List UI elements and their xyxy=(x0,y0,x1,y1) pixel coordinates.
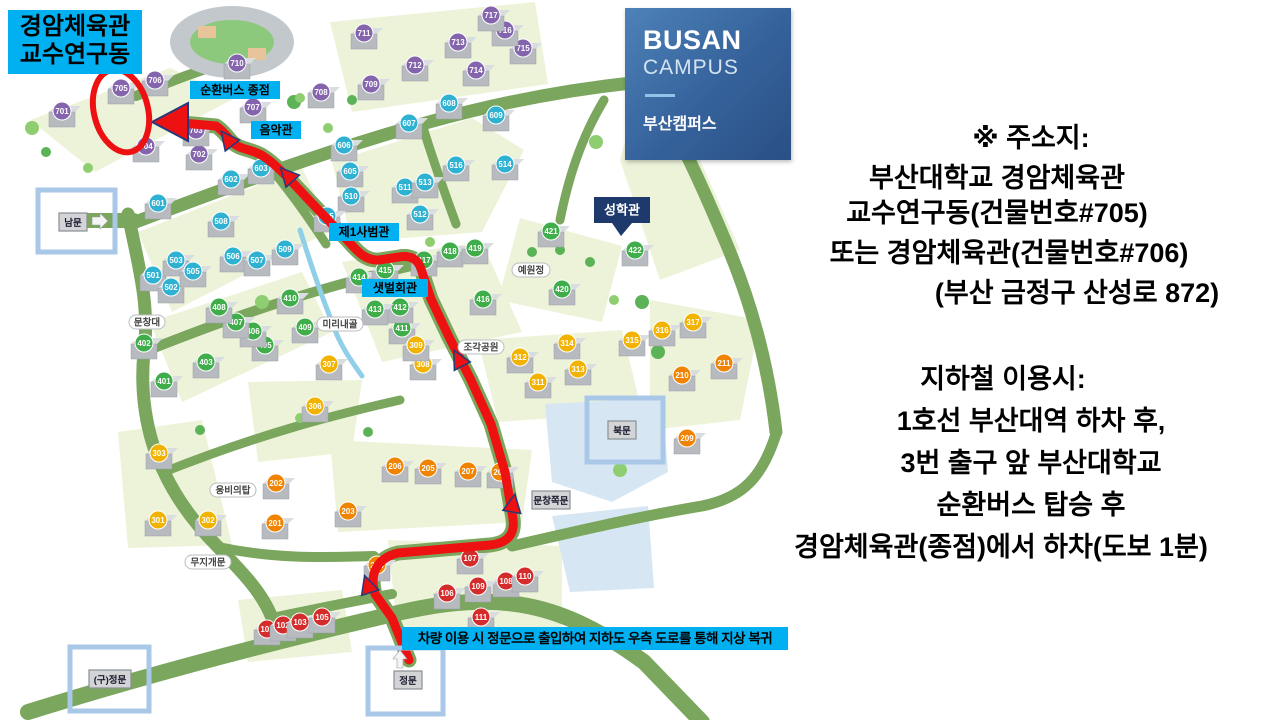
destination-banner-line1: 경암체육관 xyxy=(20,13,130,40)
route-label-text: 제1사범관 xyxy=(339,224,390,239)
building-number: 509 xyxy=(278,245,292,254)
gate-sign-label: 북문 xyxy=(613,426,631,437)
building-number: 511 xyxy=(399,183,412,192)
building-number: 506 xyxy=(226,252,240,261)
place-label-text: 문창대 xyxy=(134,317,160,329)
route-label-text: 순환버스 종점 xyxy=(200,82,270,97)
building-number: 301 xyxy=(151,516,165,525)
subway-line: 1호선 부산대역 하차 후, xyxy=(782,400,1280,442)
building-number: 205 xyxy=(421,464,435,473)
building-number: 710 xyxy=(230,59,244,68)
building-number: 701 xyxy=(55,107,69,116)
road xyxy=(28,602,702,720)
road xyxy=(218,547,374,557)
building-number: 607 xyxy=(402,119,416,128)
building-708: 708 xyxy=(308,83,340,108)
gate-sign-label: 정문 xyxy=(399,675,417,687)
building-number: 210 xyxy=(675,371,689,380)
route-label-eumakgwan: 음악관 xyxy=(251,121,301,139)
building-number: 602 xyxy=(224,175,238,184)
subway-line: 지하철 이용시: xyxy=(754,358,1252,400)
building-702: 702 xyxy=(186,145,218,170)
building-number: 201 xyxy=(268,519,282,528)
building-number: 609 xyxy=(489,111,503,120)
building-number: 306 xyxy=(308,402,322,411)
building-number: 203 xyxy=(341,507,355,516)
building-number: 312 xyxy=(513,353,527,362)
building-number: 415 xyxy=(378,266,392,275)
subway-line: 3번 출구 앞 부산대학교 xyxy=(782,442,1280,484)
building-number: 513 xyxy=(418,178,432,187)
tree xyxy=(323,123,333,133)
place-label-ungbi-tower: 웅비의탑 xyxy=(210,483,256,497)
building-number: 503 xyxy=(169,256,183,265)
building-number: 512 xyxy=(413,210,427,219)
place-label-mirinaegol: 미리내골 xyxy=(317,317,363,331)
building-number: 605 xyxy=(343,167,357,176)
building-number: 707 xyxy=(246,103,260,112)
building-209: 209 xyxy=(674,429,706,454)
address-line: (부산 금정구 산성로 872) xyxy=(828,273,1280,313)
building-number: 107 xyxy=(463,554,477,563)
gate-sign-label: 문창쪽문 xyxy=(534,495,569,507)
car-access-note: 차량 이용 시 정문으로 출입하여 지하도 우측 도로를 통해 지상 복귀 xyxy=(402,627,788,650)
building-number: 313 xyxy=(571,365,585,374)
logo-subtitle: CAMPUS xyxy=(643,55,791,81)
place-label-text: 웅비의탑 xyxy=(216,485,251,497)
building-number: 412 xyxy=(393,303,407,312)
gate-jeongmun: 정문 xyxy=(368,648,443,714)
building-number: 714 xyxy=(469,66,483,75)
building-number: 207 xyxy=(461,467,475,476)
building-number: 711 xyxy=(358,29,371,38)
building-number: 302 xyxy=(201,516,215,525)
building-number: 422 xyxy=(628,246,642,255)
tree xyxy=(585,257,595,267)
building-number: 507 xyxy=(250,256,264,265)
tree xyxy=(195,425,205,435)
place-label-text: 미리내골 xyxy=(323,319,358,331)
building-number: 510 xyxy=(344,192,358,201)
building-number: 409 xyxy=(298,323,312,332)
building-number: 402 xyxy=(137,339,151,348)
tree xyxy=(41,147,51,157)
callout-pointer xyxy=(612,223,632,236)
route-label-jeil-sabeomgwan: 제1사범관 xyxy=(329,223,399,241)
tree xyxy=(83,163,93,173)
tree xyxy=(589,135,603,149)
route-label-text: 샛벌회관 xyxy=(373,280,417,295)
tree xyxy=(613,463,627,477)
subway-line: 경암체육관(종점)에서 하차(도보 1분) xyxy=(752,526,1250,568)
logo-korean: 부산캠퍼스 xyxy=(643,110,791,134)
building-number: 608 xyxy=(442,99,456,108)
destination-banner: 경암체육관 교수연구동 xyxy=(8,10,142,74)
building-number: 419 xyxy=(468,244,482,253)
building-number: 502 xyxy=(164,283,178,292)
building-number: 413 xyxy=(368,305,382,314)
route-label-text: 음악관 xyxy=(259,122,292,137)
building-number: 606 xyxy=(337,141,351,150)
building-number: 420 xyxy=(555,285,569,294)
address-line: ※ 주소지: xyxy=(782,118,1280,158)
building-number: 712 xyxy=(408,61,422,70)
building-number: 421 xyxy=(544,227,558,236)
building-707: 707 xyxy=(240,98,272,123)
address-line: 또는 경암체육관(건물번호#706) xyxy=(760,233,1258,273)
building-number: 309 xyxy=(409,341,423,350)
building-number: 717 xyxy=(484,11,498,20)
building-number: 307 xyxy=(322,360,336,369)
tree xyxy=(363,427,373,437)
destination-banner-line2: 교수연구동 xyxy=(20,41,130,68)
building-number: 505 xyxy=(186,267,200,276)
building-number: 315 xyxy=(625,336,639,345)
building-number: 202 xyxy=(269,479,283,488)
building-number: 105 xyxy=(315,613,329,622)
building-number: 708 xyxy=(314,88,328,97)
building-307: 307 xyxy=(316,355,348,380)
building-number: 408 xyxy=(212,303,226,312)
building-number: 314 xyxy=(560,339,574,348)
building-number: 106 xyxy=(440,589,454,598)
stadium-stand xyxy=(198,26,216,38)
tree xyxy=(295,93,305,103)
logo-title: BUSAN xyxy=(643,25,791,55)
place-label-yewonjeong: 예원정 xyxy=(512,263,550,277)
place-label-text: 조각공원 xyxy=(464,342,499,354)
building-number: 501 xyxy=(146,271,160,280)
busan-campus-logo: BUSAN CAMPUS 부산캠퍼스 xyxy=(625,8,791,160)
building-number: 508 xyxy=(214,217,228,226)
gate-munchang-side-gate: 문창쪽문 xyxy=(532,491,570,509)
gate-sign-label: 남문 xyxy=(64,217,82,229)
building-number: 209 xyxy=(680,434,694,443)
building-number: 206 xyxy=(388,462,402,471)
pond xyxy=(545,398,668,502)
callout-seonghakgwan: 성학관 xyxy=(594,197,650,236)
building-number: 411 xyxy=(396,324,409,333)
building-number: 211 xyxy=(718,359,731,368)
place-label-mujigae-gate: 무지개문 xyxy=(185,555,231,569)
tree xyxy=(255,295,269,309)
building-number: 111 xyxy=(475,613,488,622)
building-number: 110 xyxy=(519,572,532,581)
building-number: 705 xyxy=(114,84,128,93)
building-number: 410 xyxy=(283,294,297,303)
building-number: 317 xyxy=(686,318,700,327)
building-number: 715 xyxy=(516,44,530,53)
gate-nammun: 남문 xyxy=(38,190,125,252)
building-201: 201 xyxy=(262,514,294,539)
building-number: 109 xyxy=(471,582,485,591)
subway-block: 지하철 이용시: 1호선 부산대역 하차 후, 3번 출구 앞 부산대학교 순환… xyxy=(782,358,1280,568)
building-202: 202 xyxy=(263,474,295,499)
building-number: 401 xyxy=(157,377,171,386)
building-number: 418 xyxy=(443,247,457,256)
route-label-sunhwan-bus-terminal: 순환버스 종점 xyxy=(190,81,280,99)
building-number: 311 xyxy=(532,378,545,387)
tree xyxy=(347,95,357,105)
building-315: 315 xyxy=(619,331,651,356)
place-label-text: 예원정 xyxy=(518,265,544,277)
directions-panel: ※ 주소지: 부산대학교 경암체육관 교수연구동(건물번호#705) 또는 경암… xyxy=(782,118,1280,568)
building-number: 108 xyxy=(499,577,513,586)
building-number: 713 xyxy=(451,38,465,47)
building-number: 103 xyxy=(293,618,307,627)
building-number: 603 xyxy=(254,164,268,173)
logo-divider xyxy=(645,94,675,97)
building-number: 416 xyxy=(476,295,490,304)
route-label-saetbeol-hoegwan: 샛벌회관 xyxy=(362,279,428,297)
building-number: 709 xyxy=(364,80,378,89)
place-label-jogak-park: 조각공원 xyxy=(458,340,504,354)
tree xyxy=(425,237,435,247)
tree xyxy=(651,345,665,359)
tree xyxy=(635,295,649,309)
building-number: 316 xyxy=(655,326,669,335)
building-number: 303 xyxy=(152,449,166,458)
address-block: ※ 주소지: 부산대학교 경암체육관 교수연구동(건물번호#705) 또는 경암… xyxy=(782,118,1280,313)
car-access-note-text: 차량 이용 시 정문으로 출입하여 지하도 우측 도로를 통해 지상 복귀 xyxy=(418,630,772,646)
tree xyxy=(527,247,537,257)
subway-line: 순환버스 탑승 후 xyxy=(782,484,1280,526)
callout-text: 성학관 xyxy=(604,203,640,218)
building-number: 403 xyxy=(199,358,213,367)
building-number: 702 xyxy=(192,150,206,159)
gate-sign-label: (구)정문 xyxy=(94,674,127,686)
building-number: 514 xyxy=(498,160,512,169)
building-number: 601 xyxy=(151,199,165,208)
place-label-munchangdae: 문창대 xyxy=(129,315,165,329)
building-number: 516 xyxy=(449,161,463,170)
tree xyxy=(25,121,39,135)
address-line: 교수연구동(건물번호#705) xyxy=(748,193,1246,233)
place-label-text: 무지개문 xyxy=(191,557,226,569)
address-line: 부산대학교 경암체육관 xyxy=(748,158,1246,198)
building-number: 308 xyxy=(416,360,430,369)
tree xyxy=(609,295,619,305)
building-number: 706 xyxy=(148,76,162,85)
